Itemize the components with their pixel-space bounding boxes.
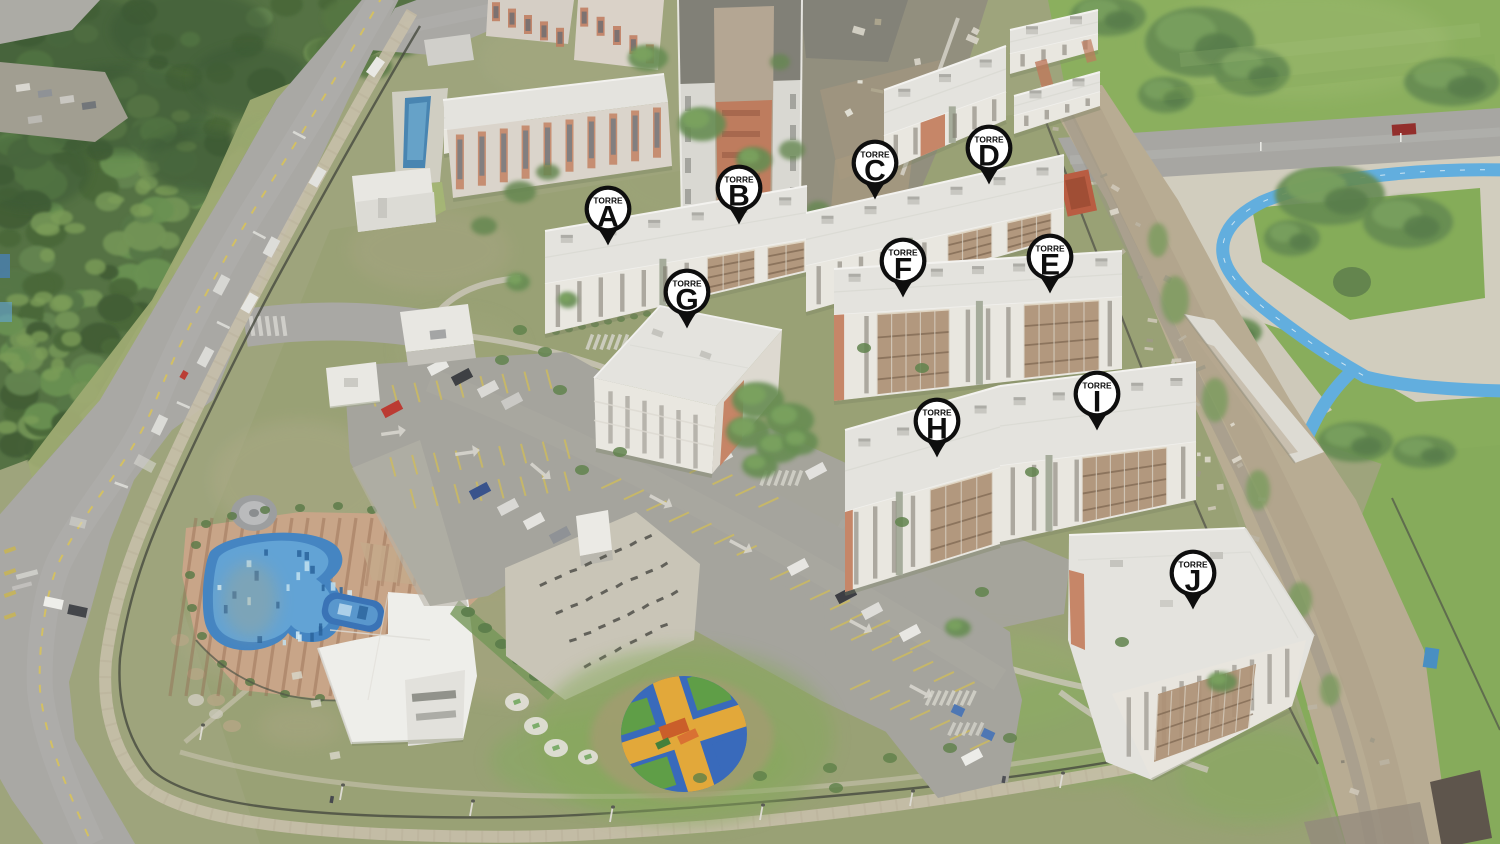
- svg-text:I: I: [1093, 386, 1101, 419]
- svg-text:F: F: [894, 253, 912, 286]
- svg-text:A: A: [597, 201, 619, 234]
- svg-text:D: D: [978, 140, 1000, 173]
- svg-text:B: B: [728, 180, 750, 213]
- svg-text:H: H: [926, 413, 948, 446]
- svg-text:J: J: [1185, 565, 1202, 598]
- svg-text:C: C: [864, 155, 886, 188]
- svg-text:G: G: [675, 284, 698, 317]
- svg-text:E: E: [1040, 249, 1060, 282]
